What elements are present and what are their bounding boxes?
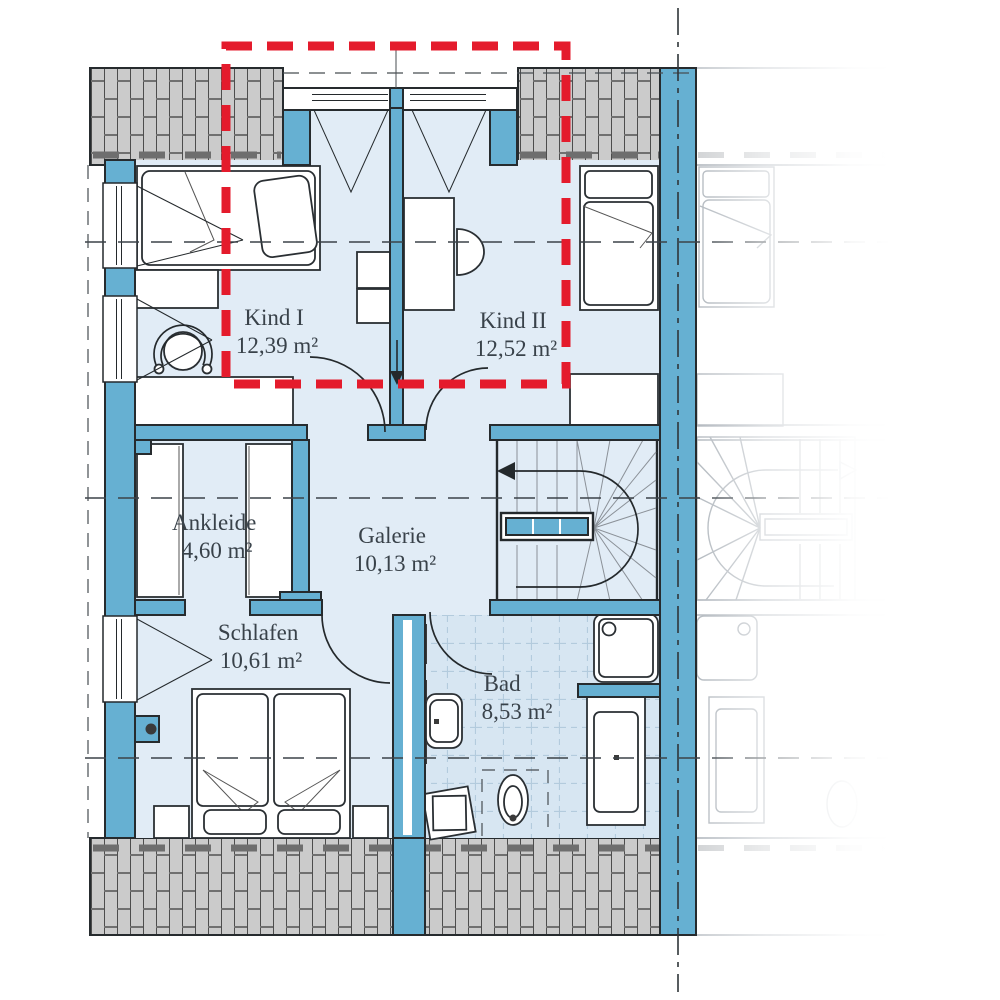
kind2-pillow xyxy=(585,171,652,198)
kind1-shelf xyxy=(357,252,390,288)
kind1-sideboard xyxy=(133,270,218,308)
floor-dormer-kind1 xyxy=(310,108,390,165)
wall-corridor-left xyxy=(135,425,307,440)
kind2-sideboard xyxy=(570,374,658,428)
laundry-basket xyxy=(422,786,475,839)
floor-dormer-kind2 xyxy=(403,108,490,165)
ghost-fade-overlay xyxy=(696,0,1000,1000)
wall-ankleide-east xyxy=(292,440,309,592)
kind2-desk xyxy=(404,198,454,310)
nightstand-right xyxy=(353,806,388,838)
staircase xyxy=(497,438,657,602)
wall-fixture xyxy=(133,716,159,742)
wall-bad-north xyxy=(490,600,660,615)
kind1-pillow xyxy=(253,174,318,258)
dormer-mullion xyxy=(390,88,403,110)
wall-schlafen-north-mid xyxy=(250,600,322,615)
pillow-right xyxy=(278,810,340,834)
toilet xyxy=(498,775,528,825)
dormer-jamb-right xyxy=(490,108,517,165)
floor-plan-canvas: Kind I 12,39 m² Kind II 12,52 m² Ankleid… xyxy=(0,0,1000,1000)
wall-corridor-right xyxy=(490,425,660,440)
wall-schlafen-north-left xyxy=(135,600,185,615)
floor-plan: Kind I 12,39 m² Kind II 12,52 m² Ankleid… xyxy=(0,0,1000,1000)
shower-ledge xyxy=(578,684,660,697)
nightstand-left xyxy=(154,806,189,838)
dormer-jamb-left xyxy=(283,108,310,165)
kind1-desk xyxy=(135,377,293,427)
pillow-left xyxy=(204,810,266,834)
shower-drain xyxy=(603,623,616,636)
roof-top-left xyxy=(90,68,283,165)
pocket-door-slot xyxy=(403,620,412,835)
